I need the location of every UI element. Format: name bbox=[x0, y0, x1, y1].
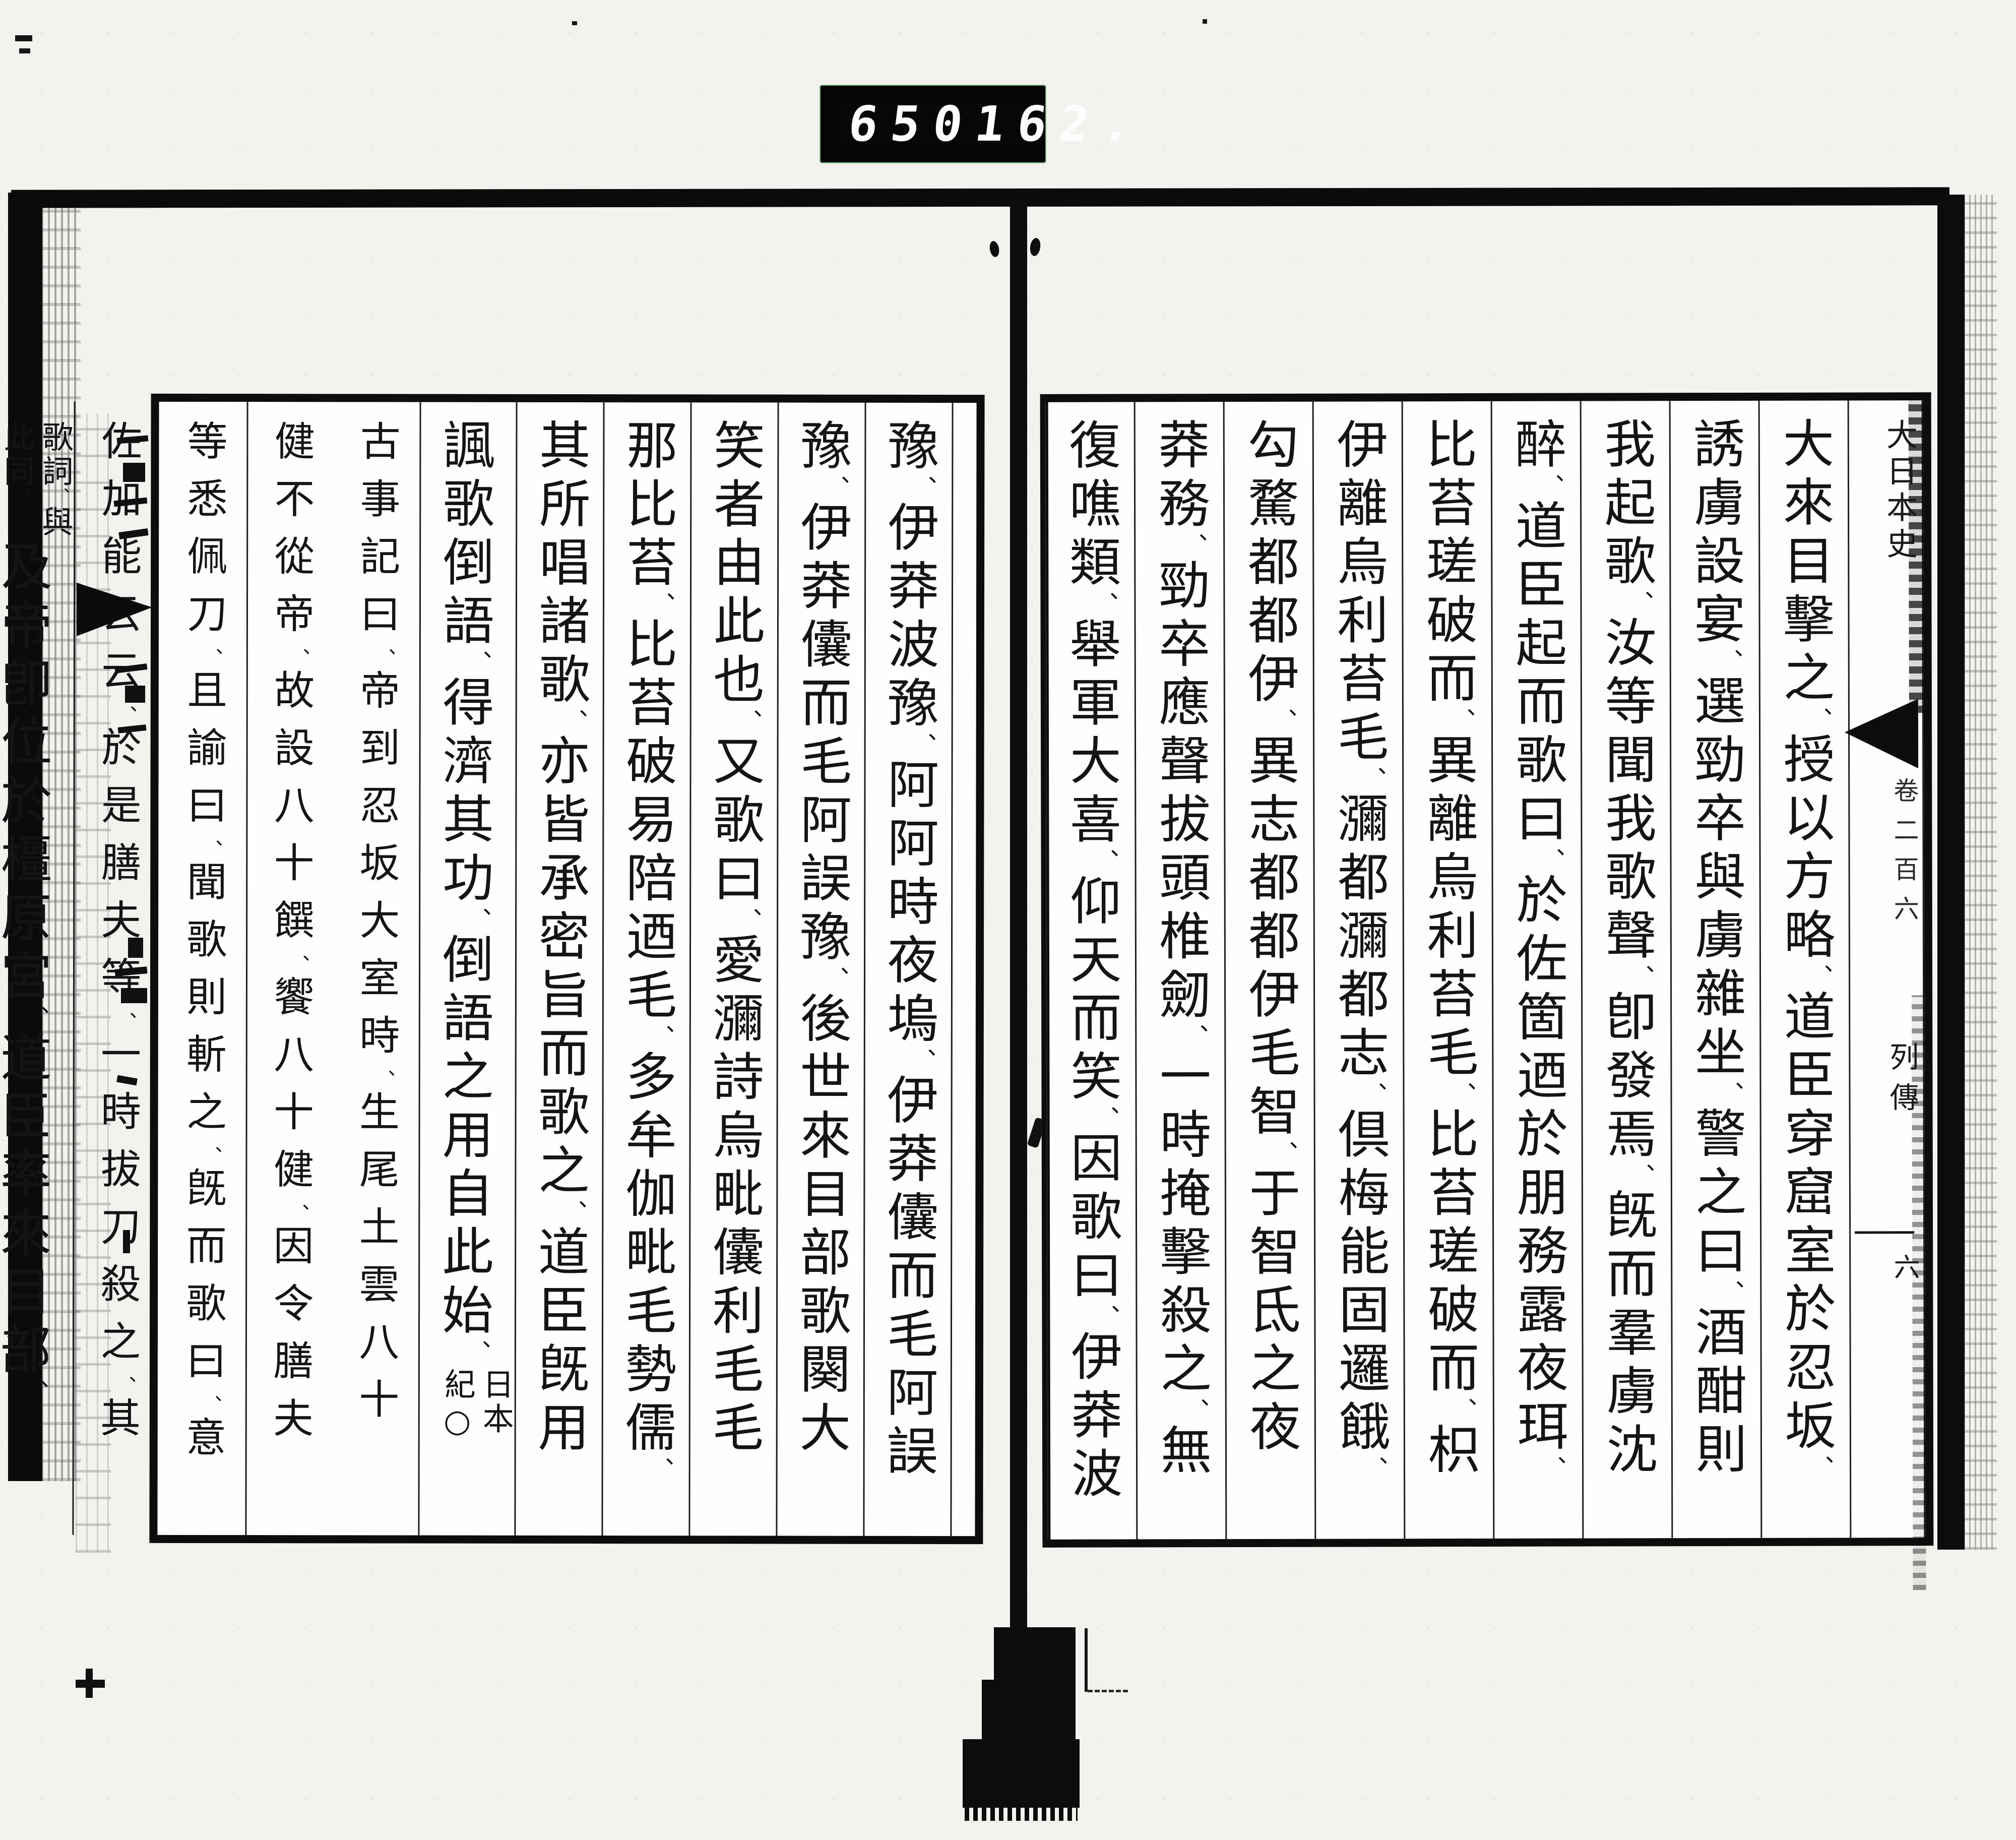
binding-blob bbox=[982, 1680, 998, 1742]
reading-mark: 、 bbox=[1183, 1398, 1210, 1421]
margin-fragment bbox=[86, 1669, 93, 1698]
reading-mark: 、 bbox=[51, 487, 71, 504]
margin-fragment bbox=[123, 463, 145, 482]
reading-mark: 、 bbox=[648, 1024, 675, 1048]
binding-blob-fringe bbox=[965, 1806, 1078, 1821]
reading-mark: 、 bbox=[823, 475, 850, 499]
note-subcolumn: 此同、 bbox=[0, 420, 36, 539]
reading-mark: 、 bbox=[561, 709, 589, 732]
book-top-edge bbox=[11, 187, 1949, 208]
page-recto: 大日本史 卷二百六 列傳 六 大來目擊之、授以方略、道臣穿窟室於忍坂、誘虜設宴、… bbox=[1040, 392, 1934, 1548]
reading-mark: 、 bbox=[823, 966, 850, 990]
reading-mark: 、 bbox=[648, 1457, 675, 1480]
left-page-columns: 豫、伊莽波豫、阿阿時夜塢、伊莽儾而毛阿誤豫、伊莽儾而毛阿誤豫、後世來目部歌闋大笑… bbox=[157, 402, 976, 1536]
speck bbox=[1203, 19, 1207, 24]
text-column: 大來目擊之、授以方略、道臣穿窟室於忍坂、 bbox=[1758, 400, 1850, 1538]
reading-mark: 、 bbox=[1718, 1280, 1745, 1303]
text-column: 其所唱諸歌、亦皆承密旨而歌之、道臣旣用 bbox=[514, 402, 603, 1536]
text-column: 醉、道臣起而歌曰、於佐箇迺於朋務露夜珥、 bbox=[1491, 401, 1583, 1539]
note-subcolumn: 日本 bbox=[476, 1368, 515, 1442]
spine-dot-right bbox=[1029, 237, 1042, 257]
reading-mark: 、 bbox=[287, 954, 309, 973]
column-text: 比苔瑳破而、異離烏利苔毛、比苔瑳破而、枳 bbox=[1417, 417, 1479, 1481]
reading-mark: 、 bbox=[1451, 1397, 1478, 1421]
binding-blob bbox=[994, 1627, 1076, 1744]
margin-fragment bbox=[116, 1075, 138, 1086]
column-text: 那比苔、比苔破易陪迺毛、多牟伽毗毛勢儒、 bbox=[616, 418, 678, 1482]
reading-mark: 、 bbox=[1627, 590, 1654, 614]
reading-mark: 、 bbox=[736, 709, 763, 732]
reading-mark: 、 bbox=[1361, 1456, 1389, 1479]
reading-mark: 、 bbox=[649, 592, 676, 615]
text-column: 莽務、勁卒應聲拔頭椎劒、一時掩擊殺之、無 bbox=[1134, 402, 1226, 1539]
reading-mark: 、 bbox=[1093, 1305, 1120, 1328]
interlinear-note: 日本紀○ bbox=[438, 1368, 515, 1442]
reading-mark: 、 bbox=[1271, 708, 1298, 731]
reading-mark: 、 bbox=[1360, 766, 1387, 789]
cutoff-margin-column bbox=[108, 403, 154, 1563]
book-spine bbox=[1010, 201, 1027, 1630]
reading-mark: 、 bbox=[1450, 1082, 1477, 1105]
column-text: 莽務、勁卒應聲拔頭椎劒、一時掩擊殺之、無 bbox=[1150, 418, 1212, 1482]
microfilm-counter: 650 162. bbox=[821, 86, 1045, 162]
text-column: 勾騖都都伊、異志都都伊毛智、于智氐之夜 bbox=[1223, 402, 1315, 1539]
column-text: 笑者由此也、又歌曰、愛瀰詩烏毗儾利毛毛 bbox=[704, 418, 765, 1459]
reading-mark: 、 bbox=[560, 1200, 588, 1223]
volume-number: 卷二百六 bbox=[1850, 777, 1923, 935]
reading-mark: 、 bbox=[1360, 1082, 1388, 1105]
reading-mark: 、 bbox=[910, 475, 937, 499]
column-text: 誘虜設宴、選勁卒與虜雜坐、警之曰、酒酣則 bbox=[1685, 417, 1747, 1481]
black-wedge-mark bbox=[1845, 699, 1918, 768]
book-title: 大日本史 bbox=[1849, 418, 1922, 564]
reading-mark: 、 bbox=[23, 1005, 50, 1028]
margin-fragment bbox=[118, 528, 148, 539]
counter-reel-number: 650 bbox=[845, 96, 979, 152]
reading-mark: 、 bbox=[1806, 964, 1834, 988]
reading-mark: 、 bbox=[464, 1340, 491, 1363]
reading-mark: 、 bbox=[1717, 649, 1744, 672]
reading-mark: 、 bbox=[1449, 708, 1476, 731]
margin-fragment bbox=[123, 1230, 130, 1253]
text-column: 伊離烏利苔毛、瀰都瀰都志、倶梅能固邏餓、 bbox=[1312, 401, 1404, 1539]
text-column: 比苔瑳破而、異離烏利苔毛、比苔瑳破而、枳 bbox=[1402, 401, 1493, 1539]
reading-mark: 、 bbox=[735, 907, 763, 931]
reading-mark: 、 bbox=[910, 732, 937, 756]
reading-mark: 、 bbox=[1717, 1081, 1744, 1105]
reading-mark: 、 bbox=[1092, 849, 1119, 872]
text-column: 誘虜設宴、選勁卒與虜雜坐、警之曰、酒酣則 bbox=[1669, 401, 1761, 1538]
margin-fragment bbox=[128, 938, 143, 958]
reading-mark: 、 bbox=[200, 1146, 222, 1165]
text-column: 古事記曰、帝到忍坂大室時、生尾土雲八十健不從帝、故設八十饌、饗八十健、因令膳夫 bbox=[245, 402, 420, 1535]
note-subcolumn: 歌詞、與 bbox=[35, 421, 74, 540]
column-text: 豫、伊莽儾而毛阿誤豫、後世來目部歌闋大 bbox=[791, 419, 852, 1459]
column-text: 其所唱諸歌、亦皆承密旨而歌之、道臣旣用 bbox=[529, 418, 591, 1459]
column-text: 勾騖都都伊、異志都都伊毛智、于智氐之夜 bbox=[1239, 418, 1301, 1458]
speck bbox=[572, 21, 577, 25]
quote-subcolumn: 健不從帝、故設八十饌、饗八十健、因令膳夫 bbox=[247, 420, 334, 1535]
column-text: 伊離烏利苔毛、瀰都瀰都志、倶梅能固邏餓、 bbox=[1328, 417, 1390, 1481]
quote-subcolumn: 等悉佩刀、且諭曰、聞歌則斬之、旣而歌曰、意 bbox=[160, 420, 247, 1535]
reading-mark: 、 bbox=[373, 648, 396, 667]
reading-mark: 、 bbox=[1538, 474, 1565, 497]
margin-fragment bbox=[125, 686, 145, 703]
margin-wedge bbox=[77, 583, 152, 636]
margin-fragment bbox=[114, 498, 148, 507]
reading-mark: 、 bbox=[465, 650, 492, 673]
right-page-columns: 大日本史 卷二百六 列傳 六 大來目擊之、授以方略、道臣穿窟室於忍坂、誘虜設宴、… bbox=[1048, 400, 1926, 1540]
leaf-number: 六 bbox=[1851, 1253, 1923, 1279]
reading-mark: 、 bbox=[1806, 707, 1833, 730]
reading-mark: 、 bbox=[1628, 964, 1655, 988]
column-text: 豫、伊莽波豫、阿阿時夜塢、伊莽儾而毛阿誤 bbox=[878, 419, 939, 1483]
reading-mark: 、 bbox=[1092, 592, 1119, 615]
column-text: 及帝卽位於橿原宮、道臣率來目部、 bbox=[0, 539, 52, 1404]
reading-mark: 、 bbox=[201, 648, 223, 667]
page-verso: 豫、伊莽波豫、阿阿時夜塢、伊莽儾而毛阿誤豫、伊莽儾而毛阿誤豫、後世來目部歌闋大笑… bbox=[149, 394, 984, 1544]
reading-mark: 、 bbox=[200, 1395, 222, 1414]
margin-fragment bbox=[115, 966, 148, 976]
reading-mark: 、 bbox=[1628, 1163, 1656, 1186]
column-text: 大來目擊之、授以方略、道臣穿窟室於忍坂、 bbox=[1774, 417, 1836, 1481]
spine-dot-left bbox=[988, 240, 1000, 258]
reading-mark: 、 bbox=[1540, 1456, 1567, 1479]
reading-mark: 、 bbox=[1181, 533, 1208, 556]
text-column: 笑者由此也、又歌曰、愛瀰詩烏毗儾利毛毛 bbox=[688, 402, 777, 1536]
reading-mark: 、 bbox=[373, 1069, 395, 1088]
reading-mark: 、 bbox=[287, 1203, 309, 1222]
leaf-rule bbox=[1855, 1231, 1914, 1234]
margin-fragment bbox=[115, 663, 148, 673]
binding-blob bbox=[963, 1739, 1080, 1808]
hashira-title-column: 大日本史 卷二百六 列傳 六 bbox=[1848, 400, 1926, 1538]
reading-mark: 、 bbox=[1182, 1024, 1209, 1047]
reading-mark: 、 bbox=[1272, 1141, 1299, 1164]
text-column: 諷歌倒語、得濟其功、倒語之用自此始、日本紀○ bbox=[418, 402, 516, 1536]
reading-mark: 、 bbox=[910, 1048, 937, 1071]
page-corner-line bbox=[1088, 1690, 1128, 1692]
column-text: 我起歌、汝等聞我歌聲、卽發焉、旣而羣虜沈 bbox=[1596, 417, 1658, 1481]
section-label: 列傳 bbox=[1850, 1041, 1923, 1122]
reading-mark: 、 bbox=[1538, 848, 1565, 871]
reading-mark: 、 bbox=[1807, 1455, 1835, 1479]
reading-mark: 、 bbox=[465, 907, 492, 931]
text-column: 歌詞、與此同、及帝卽位於橿原宮、道臣率來目部、 bbox=[0, 401, 74, 1535]
column-text: 復噍類、舉軍大喜、仰天而笑、因歌曰、伊莽波 bbox=[1060, 418, 1123, 1505]
reading-mark: 、 bbox=[201, 839, 223, 858]
scan-right-dark-band bbox=[1937, 195, 1965, 1550]
column-text: 諷歌倒語、得濟其功、倒語之用自此始、 bbox=[433, 418, 494, 1365]
quote-subcolumn: 古事記曰、帝到忍坂大室時、生尾土雲八十 bbox=[333, 420, 420, 1535]
counter-frame-number: 162. bbox=[972, 96, 1148, 152]
reading-mark: 、 bbox=[22, 1379, 49, 1402]
text-column: 復噍類、舉軍大喜、仰天而笑、因歌曰、伊莽波 bbox=[1045, 402, 1137, 1539]
margin-fragment bbox=[118, 724, 147, 733]
text-column: 豫、伊莽儾而毛阿誤豫、後世來目部歌闋大 bbox=[776, 403, 864, 1536]
margin-fragment bbox=[117, 435, 149, 444]
speck bbox=[15, 35, 32, 41]
text-column: 豫、伊莽波豫、阿阿時夜塢、伊莽儾而毛阿誤 bbox=[863, 403, 953, 1536]
reading-mark: 、 bbox=[13, 487, 32, 503]
page-corner-line bbox=[1085, 1628, 1088, 1692]
speck bbox=[19, 48, 30, 53]
column-text: 醉、道臣起而歌曰、於佐箇迺於朋務露夜珥、 bbox=[1506, 417, 1568, 1481]
margin-fragment bbox=[121, 988, 147, 1003]
text-column: 那比苔、比苔破易陪迺毛、多牟伽毗毛勢儒、 bbox=[601, 402, 690, 1536]
reading-mark: 、 bbox=[288, 648, 310, 667]
reading-mark: 、 bbox=[1093, 1106, 1120, 1129]
note-subcolumn: 紀○ bbox=[438, 1368, 476, 1442]
interlinear-note: 歌詞、與此同、 bbox=[0, 420, 74, 539]
text-column: 我起歌、汝等聞我歌聲、卽發焉、旣而羣虜沈 bbox=[1580, 401, 1672, 1538]
